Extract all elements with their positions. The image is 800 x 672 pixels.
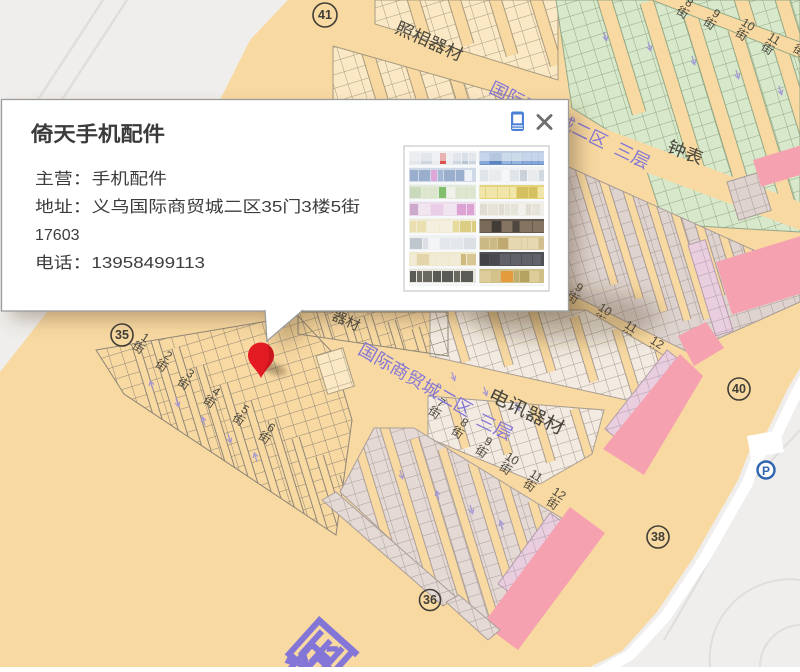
svg-text:35: 35: [115, 328, 129, 342]
svg-text:36: 36: [423, 593, 437, 607]
svg-text:17603: 17603: [35, 227, 80, 244]
svg-text:地址：义乌国际商贸城二区35门3楼5街: 地址：义乌国际商贸城二区35门3楼5街: [35, 198, 360, 216]
svg-text:P: P: [762, 464, 770, 478]
svg-text:倚天手机配件: 倚天手机配件: [30, 122, 165, 146]
svg-text:41: 41: [318, 8, 332, 22]
svg-text:40: 40: [732, 382, 746, 396]
svg-text:38: 38: [651, 530, 665, 544]
svg-text:主营：手机配件: 主营：手机配件: [35, 170, 167, 188]
svg-text:电话：13958499113: 电话：13958499113: [35, 254, 205, 272]
